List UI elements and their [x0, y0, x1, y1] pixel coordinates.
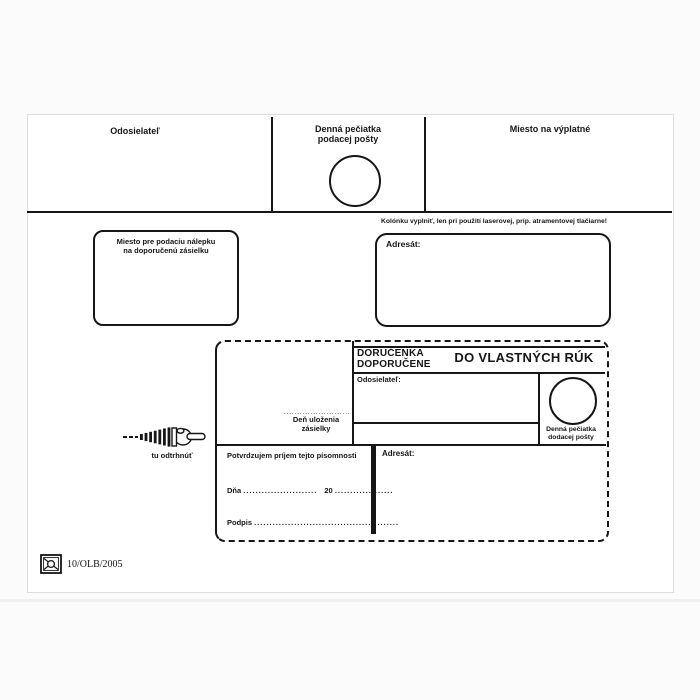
sticker-box-label-line2: na doporučenú zásielku	[95, 247, 237, 256]
form-code: 10/OLB/2005	[67, 559, 123, 570]
signature-label: Podpis	[227, 518, 252, 527]
date-dotted-line: ........................	[243, 486, 317, 495]
postage-area-label: Miesto na výplatné	[455, 124, 645, 134]
slip-title-left: DORUČENKA DOPORUČENE	[357, 349, 431, 370]
tear-here-label: tu odtrhnúť	[138, 452, 206, 461]
registered-sticker-box: Miesto pre podaciu nálepku na doporučenú…	[93, 230, 239, 326]
scanned-postal-form: Odosielateľ Denná pečiatka podacej pošty…	[0, 0, 700, 700]
slip-header-bottom-line	[352, 372, 605, 374]
delivery-stamp-label-line2: dodacej pošty	[536, 434, 606, 442]
slip-title-line2: DOPORUČENE	[357, 360, 431, 371]
origin-stamp-label-line1: Denná pečiatka	[296, 124, 400, 134]
sender-area-label: Odosielateľ	[60, 126, 210, 136]
origin-stamp-label: Denná pečiatka podacej pošty	[296, 124, 400, 145]
divider-top-vertical-2	[424, 117, 426, 212]
printer-note: Kolónku vyplniť, len pri použití laserov…	[380, 218, 608, 226]
signature-dotted-line: ........................................…	[254, 518, 399, 527]
postal-logo-icon	[40, 554, 62, 574]
slip-addressee-label: Adresát:	[382, 449, 414, 458]
slip-title-line1: DORUČENKA	[357, 349, 431, 360]
delivery-slip-outline	[215, 340, 609, 542]
scan-shadow	[0, 599, 700, 602]
slip-vertical-left	[352, 341, 354, 445]
delivery-stamp-label: Denná pečiatka dodacej pošty	[536, 426, 606, 441]
year-prefix: 20	[324, 486, 332, 495]
slip-sender-bottom-line	[352, 422, 540, 424]
confirmation-text: Potvrdzujem príjem tejto písomnosti	[227, 452, 357, 461]
origin-stamp-circle	[329, 155, 381, 207]
divider-top-horizontal	[27, 211, 672, 213]
deposit-day-block: ......................... Deň uloženia z…	[284, 411, 348, 433]
origin-stamp-label-line2: podacej pošty	[296, 134, 400, 144]
delivery-stamp-label-line1: Denná pečiatka	[536, 426, 606, 434]
date-label: Dňa	[227, 486, 241, 495]
addressee-box: Adresát:	[375, 233, 611, 327]
addressee-box-label: Adresát:	[386, 240, 609, 250]
divider-top-vertical-1	[271, 117, 273, 212]
deposit-day-label-line2: zásielky	[284, 425, 348, 434]
tear-here-hand-icon	[123, 424, 207, 450]
delivery-stamp-circle	[549, 377, 597, 425]
slip-main-horizontal-line	[216, 444, 606, 446]
year-dotted-line: ...................	[335, 486, 394, 495]
signature-row: Podpis .................................…	[227, 518, 399, 527]
slip-title-right: DO VLASTNÝCH RÚK	[445, 351, 603, 366]
date-row: Dňa ........................ 20 ........…	[227, 486, 393, 495]
slip-sender-label: Odosielateľ:	[357, 375, 401, 384]
